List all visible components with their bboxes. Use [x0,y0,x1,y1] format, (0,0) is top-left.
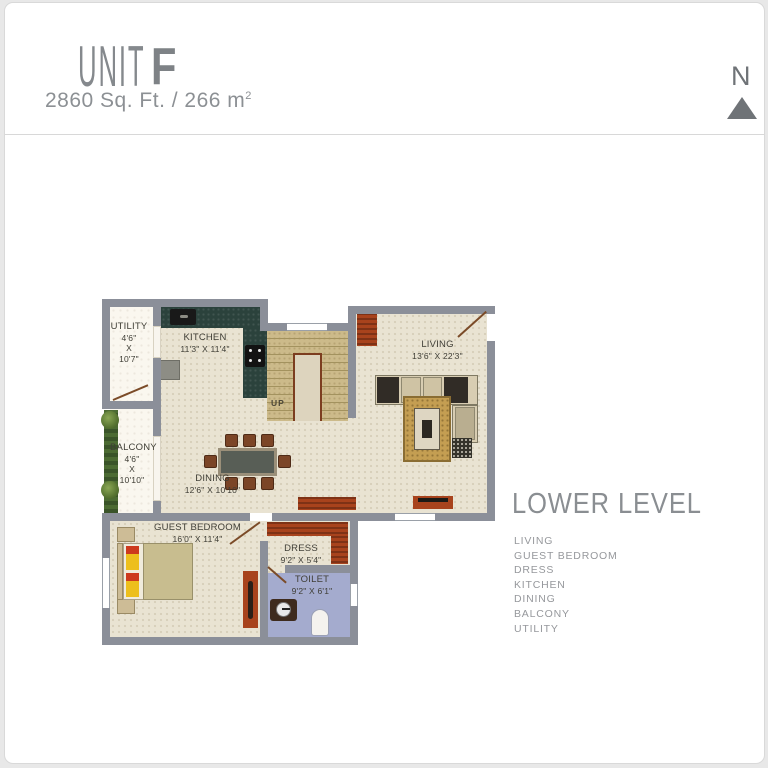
washbasin-faucet [282,608,290,610]
nightstand [117,599,135,614]
room-dims: 12'6" X 10'10" [170,485,255,496]
window [395,513,435,521]
bed-pillow-yellow [126,581,139,597]
wall [348,306,356,418]
room-name: DRESS [272,544,330,555]
stove-burner [258,349,261,352]
room-dims: 10'7" [108,354,150,365]
wall [102,299,268,307]
wall [285,565,350,573]
north-arrow-icon [727,97,757,119]
kitchen-sink-faucet [180,315,188,318]
room-label-dress: DRESS 9'2" X 5'4" [272,544,330,565]
dining-chair [278,455,291,468]
room-name: TOILET [283,575,341,586]
dining-chair [261,477,274,490]
legend-item: KITCHEN [514,578,618,593]
dining-table [218,448,277,476]
dining-chair [225,434,238,447]
room-dims: 10'10" [110,475,154,486]
wardrobe-top [267,522,348,536]
window [102,558,110,608]
bed-pillow-yellow [126,554,139,570]
stair-steps-right [322,331,348,421]
stove-burner [249,349,252,352]
header-divider [5,134,764,135]
toilet-wc [311,609,329,636]
room-label-toilet: TOILET 9'2" X 6'1" [283,575,341,596]
refrigerator [158,360,180,380]
stove [245,345,265,367]
stove-burner [258,359,261,362]
wall [350,306,495,314]
area-text: 2860 Sq. Ft. / 266 m [45,89,245,112]
room-label-kitchen: KITCHEN 11'3" X 11'4" [170,333,240,354]
stove-burner [249,359,252,362]
room-name: UTILITY [108,322,150,333]
wall [153,358,161,436]
floor-plan: UP [100,296,500,648]
coffee-table-center [422,420,432,438]
room-dims: X [108,343,150,354]
wall [272,513,358,521]
legend-list: LIVING GUEST BEDROOM DRESS KITCHEN DININ… [514,534,618,636]
area-superscript: 2 [245,90,252,102]
dining-chair [261,434,274,447]
room-name: LIVING [395,340,480,351]
legend-item: DINING [514,592,618,607]
room-dims: 13'6" X 22'3" [395,351,480,362]
legend-item: UTILITY [514,622,618,637]
sofa-cushion [377,377,399,403]
wall [350,606,358,645]
room-name: GUEST BEDROOM [140,523,255,534]
doormat [452,438,472,458]
wall [102,637,358,645]
brochure-card: UNIT F 2860 Sq. Ft. / 266 m2 N UP [4,2,765,764]
door-opening [153,326,161,358]
sofa-chaise-cushion [455,407,475,440]
wall [487,341,495,521]
room-dims: 4'6" [108,333,150,344]
bed-pillow-red [126,546,139,554]
room-label-utility: UTILITY 4'6" X 10'7" [108,322,150,364]
room-name: DINING [170,474,255,485]
window [287,323,327,331]
room-dims: X [110,464,154,475]
legend-item: BALCONY [514,607,618,622]
wall [260,299,268,331]
tv [418,498,448,502]
stairs-up-label: UP [271,398,285,408]
room-label-balcony: BALCONY 4'6" X 10'10" [110,443,154,485]
wall [268,323,287,331]
wall [102,401,157,409]
room-label-dining: DINING 12'6" X 10'10" [170,474,255,495]
wall [350,521,358,584]
room-dims: 9'2" X 5'4" [272,555,330,566]
legend-heading: LOWER LEVEL [512,488,702,521]
bed-pillow-red [126,573,139,581]
wall [260,541,268,637]
room-dims: 16'0" X 11'4" [140,534,255,545]
room-dims: 4'6" [110,454,154,465]
wardrobe-right [331,536,348,564]
bedroom-cabinet-handle [248,581,253,619]
stair-steps-top [293,331,322,353]
legend-item: DRESS [514,563,618,578]
sideboard [298,497,356,510]
plant [101,411,119,429]
legend-item: LIVING [514,534,618,549]
wall [102,513,250,521]
north-label: N [731,61,751,92]
room-label-guest-bedroom: GUEST BEDROOM 16'0" X 11'4" [140,523,255,544]
wall [435,513,495,521]
dining-chair [204,455,217,468]
legend-item: GUEST BEDROOM [514,549,618,564]
stair-recess-outside [267,296,350,323]
stair-well [293,353,322,421]
room-label-living: LIVING 13'6" X 22'3" [395,340,480,361]
unit-letter: F [151,37,176,97]
dining-chair [243,434,256,447]
unit-area: 2860 Sq. Ft. / 266 m2 [45,89,252,113]
room-name: KITCHEN [170,333,240,344]
window [350,584,358,606]
bed-blanket [143,543,193,600]
nightstand [117,527,135,542]
room-dims: 11'3" X 11'4" [170,344,240,355]
room-dims: 9'2" X 6'1" [283,586,341,597]
room-name: BALCONY [110,443,154,454]
wall [153,299,161,326]
